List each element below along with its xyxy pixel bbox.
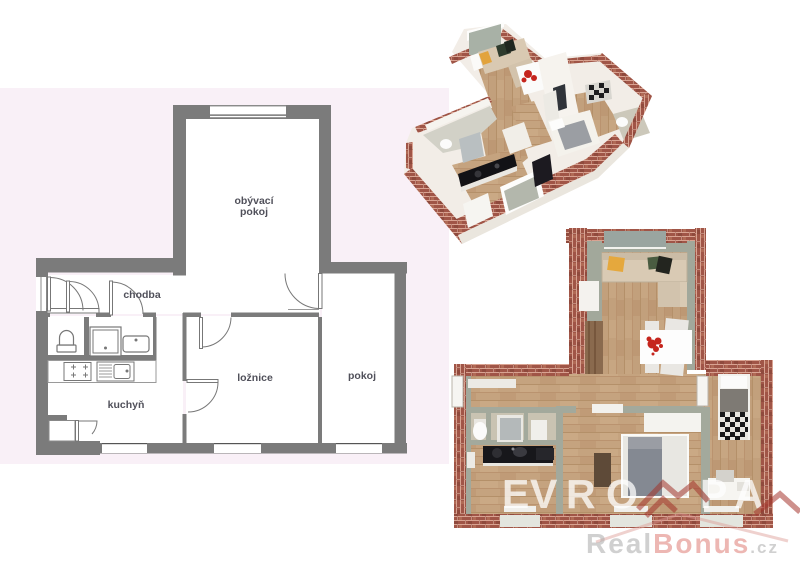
svg-text:chodba: chodba <box>123 289 160 301</box>
svg-text:E: E <box>502 471 529 517</box>
svg-text:pokoj: pokoj <box>240 206 268 218</box>
svg-text:RealBonus.cz: RealBonus.cz <box>586 528 779 559</box>
svg-text:O: O <box>606 471 638 517</box>
svg-text:V: V <box>530 471 558 517</box>
svg-text:ložnice: ložnice <box>237 372 273 384</box>
svg-text:pokoj: pokoj <box>348 370 376 382</box>
svg-text:R: R <box>566 471 596 517</box>
svg-text:kuchyň: kuchyň <box>108 399 145 411</box>
